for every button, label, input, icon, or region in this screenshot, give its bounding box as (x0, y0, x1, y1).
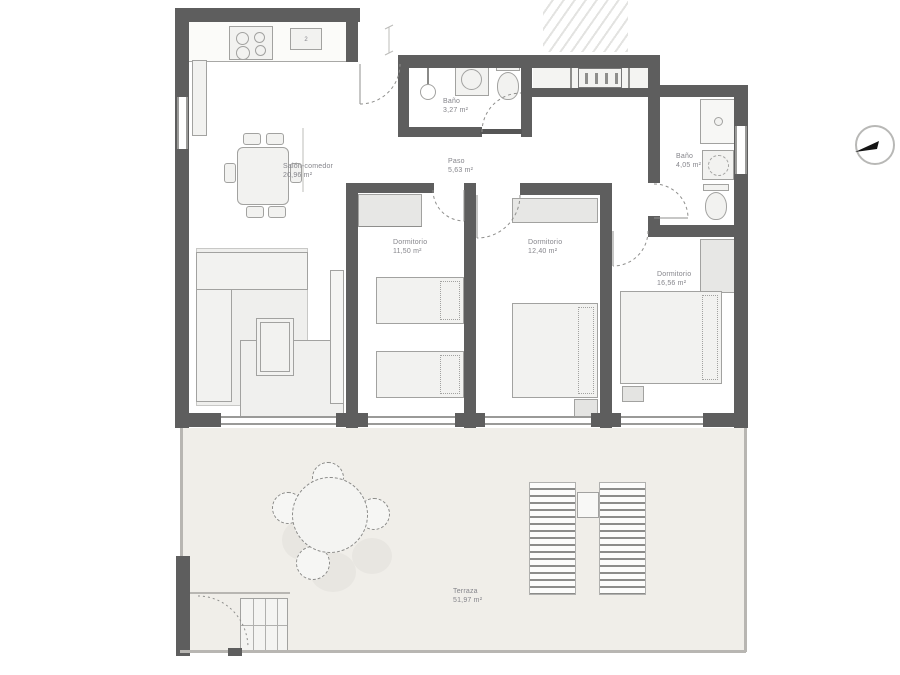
floor-plan: 2 (0, 0, 900, 675)
door-arc (433, 190, 464, 221)
door-arc (482, 93, 521, 132)
door-arc (613, 231, 648, 266)
room-label-terraza: Terraza 51,97 m² (453, 587, 482, 605)
room-name: Dormitorio (657, 270, 691, 279)
room-area: 11,50 m² (393, 247, 427, 256)
room-label-banyo-top: Baño 3,27 m² (443, 97, 468, 115)
room-name: Baño (676, 152, 701, 161)
room-area: 51,97 m² (453, 596, 482, 605)
room-name: Salón-comedor (283, 162, 333, 171)
room-name: Dormitorio (528, 238, 562, 247)
room-label-salon: Salón-comedor 20,96 m² (283, 162, 333, 180)
room-name: Terraza (453, 587, 482, 596)
room-label-dorm3: Dormitorio 16,56 m² (657, 270, 691, 288)
room-area: 5,63 m² (448, 166, 473, 175)
room-area: 4,05 m² (676, 161, 701, 170)
door-arc (360, 64, 400, 104)
room-name: Baño (443, 97, 468, 106)
door-arc (477, 195, 520, 238)
room-area: 16,56 m² (657, 279, 691, 288)
room-label-banyo-right: Baño 4,05 m² (676, 152, 701, 170)
compass-icon (852, 122, 898, 168)
door-arc (198, 596, 248, 648)
door-arc (654, 184, 688, 218)
room-area: 3,27 m² (443, 106, 468, 115)
room-area: 12,40 m² (528, 247, 562, 256)
room-label-paso: Paso 5,63 m² (448, 157, 473, 175)
room-name: Paso (448, 157, 473, 166)
room-label-dorm2: Dormitorio 12,40 m² (528, 238, 562, 256)
room-area: 20,96 m² (283, 171, 333, 180)
room-name: Dormitorio (393, 238, 427, 247)
room-label-dorm1: Dormitorio 11,50 m² (393, 238, 427, 256)
